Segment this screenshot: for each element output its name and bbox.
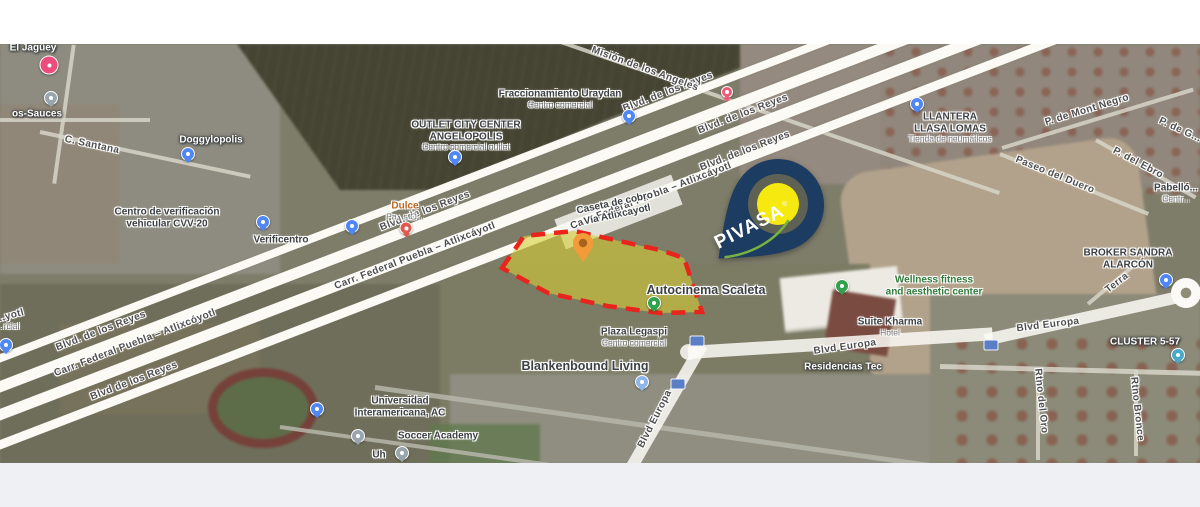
blue-pin-roundabout[interactable] [1159, 273, 1173, 287]
place-label[interactable]: Verificentro [253, 234, 308, 246]
blue-pin-universidad[interactable] [310, 402, 324, 416]
green-pin-autocinema[interactable] [647, 296, 661, 310]
place-label[interactable]: UniversidadInteramericana, AC [355, 396, 446, 419]
athletic-track [208, 368, 318, 448]
parcel-polygon [502, 231, 702, 313]
place-label[interactable]: Residencias Tec [804, 361, 882, 373]
blue-pin-verificentro[interactable] [345, 219, 359, 233]
place-label[interactable]: Doggylopolis [179, 134, 242, 146]
road-shield-icon [690, 336, 705, 347]
blue-pin-llantera[interactable] [910, 97, 924, 111]
road-shield-icon [671, 379, 686, 390]
blue-pin-verificacion[interactable] [256, 215, 270, 229]
place-label[interactable]: Centro de verificaciónvehicular CVV-20 [114, 207, 219, 230]
road-shield-icon [984, 340, 999, 351]
map-screenshot: PIVASA ® Blvd. de los ReyesBlvd. de los … [0, 0, 1200, 507]
pivasa-brand-pin[interactable]: PIVASA ® [690, 140, 880, 290]
place-label[interactable]: CLUSTER 5-57 [1110, 336, 1180, 348]
place-label[interactable]: Uh [372, 449, 385, 461]
red-pin-dulce[interactable] [400, 222, 413, 235]
place-label[interactable]: Plaza LegaspiCentro comercial [601, 326, 667, 347]
blue-pin-outlet[interactable] [448, 150, 462, 164]
blue-pin-cluster[interactable] [1171, 348, 1185, 362]
blue-pin-doggylopolis[interactable] [181, 147, 195, 161]
pink-pin-reyes[interactable] [721, 86, 733, 98]
place-label[interactable]: os-Sauces [12, 108, 62, 120]
place-label[interactable]: LLANTERALLASA LOMASTienda de neumáticos [908, 112, 991, 145]
place-label[interactable]: Blankenbound Living [521, 359, 648, 373]
gray-pin-uh[interactable] [395, 446, 409, 460]
place-label[interactable]: El Jagüey [10, 44, 57, 54]
place-label[interactable]: Pabelló...Centr... [1154, 182, 1198, 203]
place-label[interactable]: Soccer Academy [398, 430, 478, 442]
place-label[interactable]: Suite KharmaHotel [858, 316, 922, 337]
place-label[interactable]: ...rcial [0, 322, 19, 332]
top-white-band [0, 0, 1200, 44]
satellite-map[interactable]: PIVASA ® Blvd. de los ReyesBlvd. de los … [0, 44, 1200, 463]
heart-pin-el-jaguey[interactable] [40, 56, 59, 75]
lightblue-pin-blankenbound[interactable] [635, 375, 649, 389]
gray-pin-los-sauces[interactable] [44, 91, 58, 105]
roundabout [1171, 278, 1200, 308]
blue-pin-uraydan[interactable] [622, 109, 636, 123]
place-label[interactable]: DulcePa...s O... [386, 200, 424, 221]
gray-pin-soccer-academy[interactable] [351, 429, 365, 443]
place-label[interactable]: Fraccionamiento UraydanCentro comercial [499, 88, 622, 109]
place-label[interactable]: OUTLET CITY CENTERANGELOPOLISCentro come… [411, 120, 520, 153]
place-label[interactable]: Wellness fitnessand aesthetic center [886, 275, 983, 298]
bottom-white-band [0, 463, 1200, 507]
place-label[interactable]: BROKER SANDRAALARCÓN [1084, 248, 1173, 271]
